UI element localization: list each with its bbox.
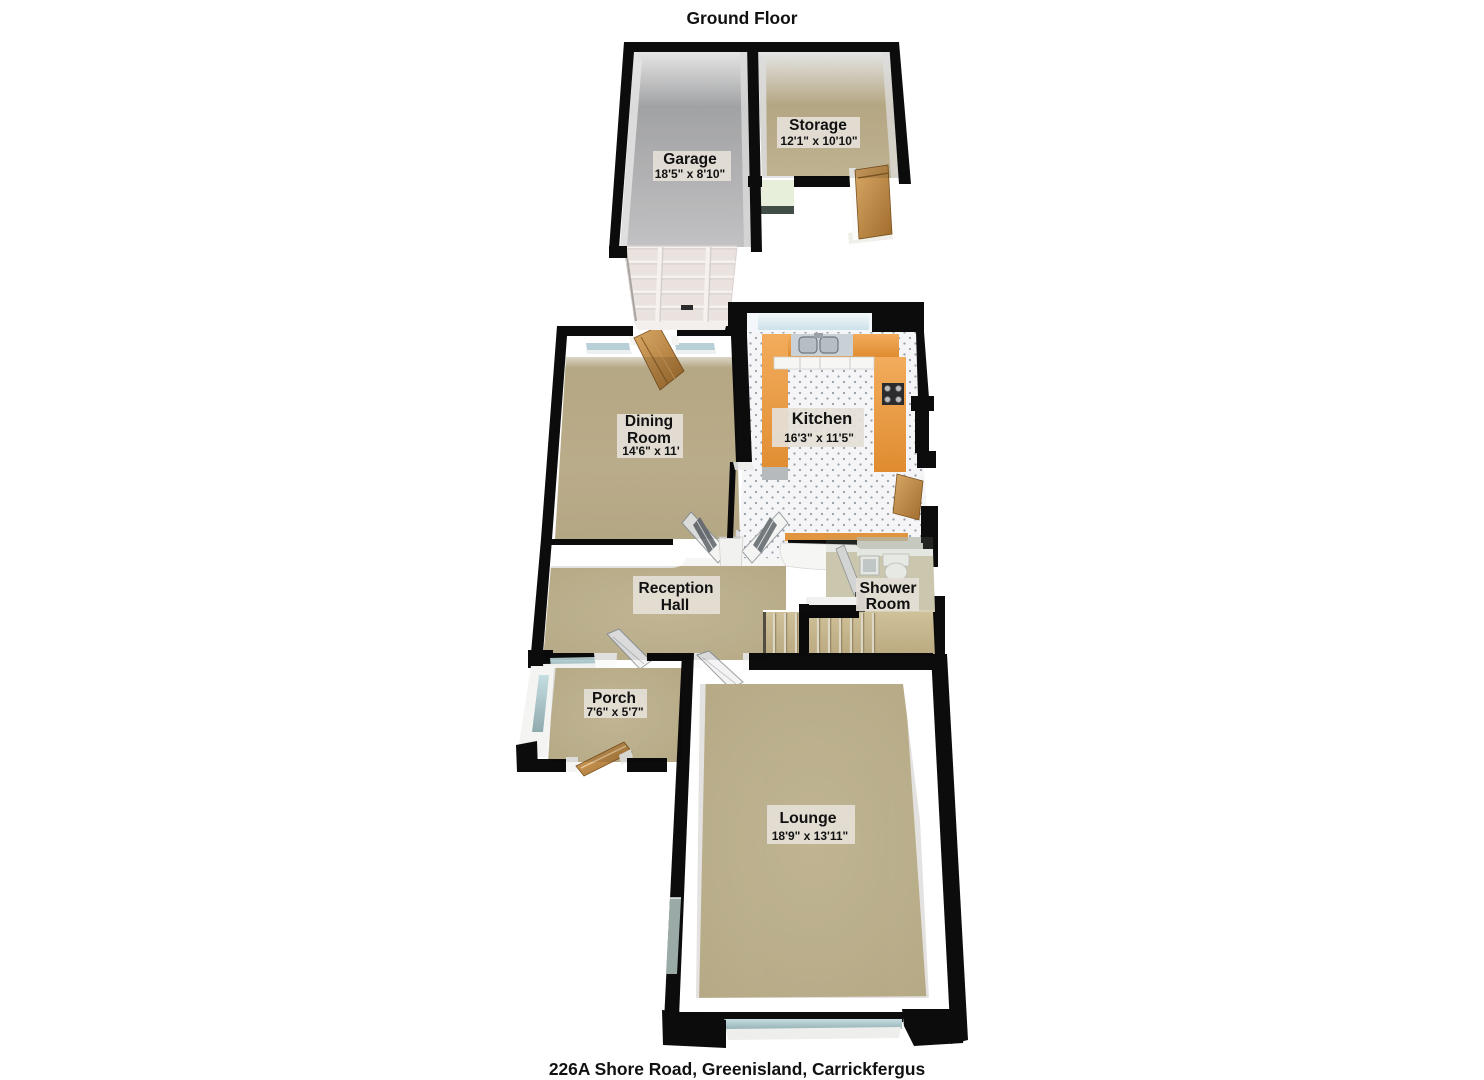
svg-text:18'5" x 8'10": 18'5" x 8'10": [655, 167, 725, 181]
svg-text:Dining: Dining: [625, 413, 673, 430]
svg-text:226A Shore Road, Greenisland,: 226A Shore Road, Greenisland, Carrickfer…: [549, 1059, 925, 1079]
svg-text:Shower: Shower: [859, 580, 916, 597]
svg-text:16'3" x 11'5": 16'3" x 11'5": [784, 431, 854, 445]
svg-text:Ground Floor: Ground Floor: [686, 8, 797, 28]
svg-text:Hall: Hall: [661, 597, 689, 614]
svg-text:14'6" x 11': 14'6" x 11': [622, 444, 680, 458]
svg-text:7'6" x 5'7": 7'6" x 5'7": [586, 705, 643, 719]
svg-text:Storage: Storage: [789, 117, 847, 134]
svg-text:Reception: Reception: [639, 580, 714, 597]
svg-text:Room: Room: [866, 596, 911, 613]
svg-text:Garage: Garage: [663, 151, 717, 168]
svg-text:Kitchen: Kitchen: [792, 410, 853, 428]
svg-text:12'1" x 10'10": 12'1" x 10'10": [780, 134, 857, 148]
svg-text:18'9" x 13'11": 18'9" x 13'11": [772, 829, 848, 843]
svg-text:Lounge: Lounge: [779, 810, 836, 827]
